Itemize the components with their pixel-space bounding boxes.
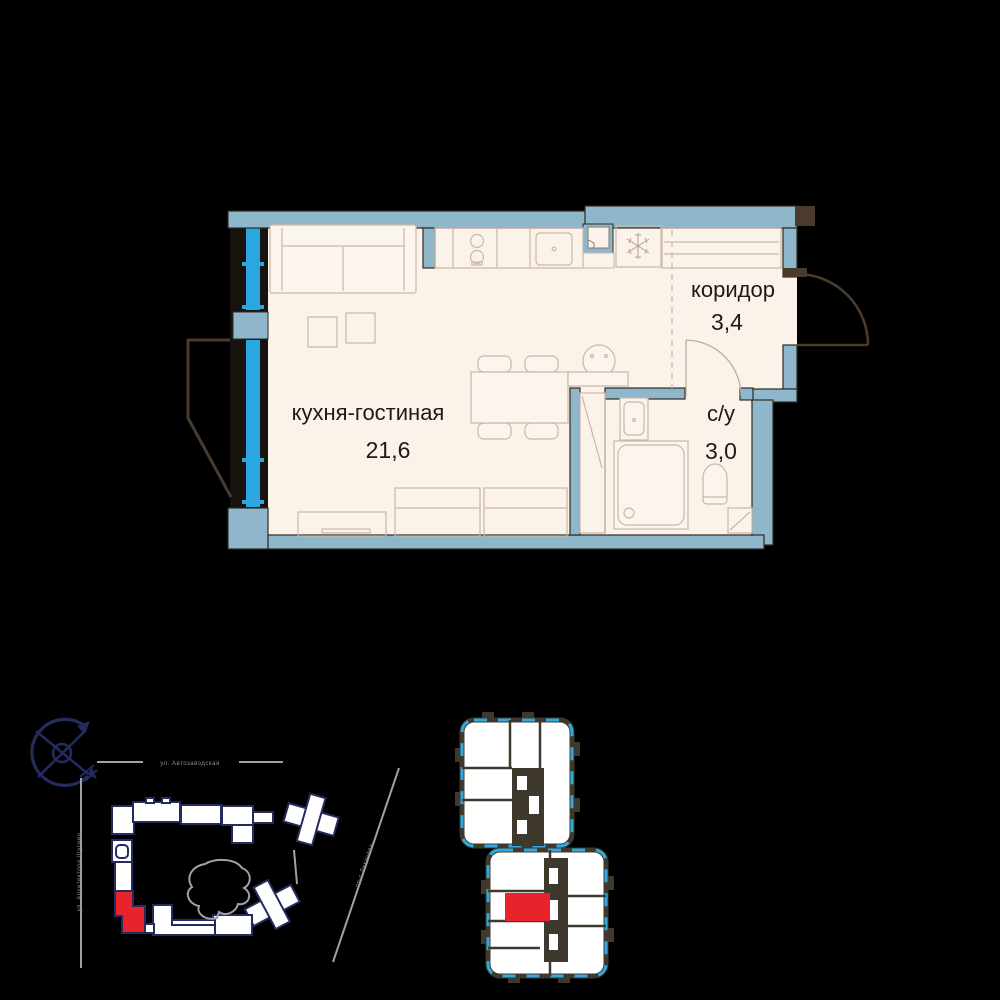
wall-pier bbox=[233, 312, 268, 339]
floorplan-page: кухня-гостиная 21,6 коридор 3,4 с/у 3,0 … bbox=[0, 0, 1000, 1000]
core bbox=[512, 768, 544, 846]
balcony-outline bbox=[188, 340, 231, 497]
tower-building bbox=[279, 789, 342, 850]
shower-icon bbox=[614, 441, 688, 529]
street-label-left: ул. Архитектора Щусева bbox=[77, 832, 83, 911]
room-area-kitchen: 21,6 bbox=[366, 437, 411, 463]
compass-icon bbox=[32, 719, 97, 785]
duct-shaft bbox=[583, 224, 614, 268]
room-area-bathroom: 3,0 bbox=[705, 438, 737, 464]
door-jamb bbox=[783, 268, 807, 277]
room-area-corridor: 3,4 bbox=[711, 309, 743, 335]
lower-tower bbox=[481, 850, 614, 983]
apartment-floor-plan: кухня-гостиная 21,6 коридор 3,4 с/у 3,0 bbox=[188, 206, 868, 549]
upper-tower bbox=[455, 712, 580, 859]
building-floor-layout bbox=[455, 712, 614, 983]
window-glazing bbox=[246, 228, 260, 310]
window-glazing bbox=[246, 340, 260, 507]
courtyard-pond bbox=[188, 860, 250, 919]
room-label-bathroom: с/у bbox=[707, 401, 735, 426]
room-label-kitchen: кухня-гостиная bbox=[292, 400, 445, 425]
entrance-door bbox=[797, 274, 868, 345]
washbasin-icon bbox=[620, 398, 648, 440]
toilet-icon bbox=[703, 464, 727, 504]
floor-highlight-unit[interactable] bbox=[505, 893, 550, 921]
street-label-top: ул. Автозаводская bbox=[160, 761, 219, 767]
wall-end-cap bbox=[795, 206, 815, 226]
site-plan: ул. Автозаводская ул. Архитектора Щусева… bbox=[32, 719, 399, 968]
plans-svg: кухня-гостиная 21,6 коридор 3,4 с/у 3,0 … bbox=[0, 0, 1000, 1000]
window-wall bbox=[230, 222, 268, 542]
sofa bbox=[270, 225, 416, 293]
entry-threshold bbox=[783, 277, 797, 345]
bath-duct bbox=[728, 508, 752, 533]
room-label-corridor: коридор bbox=[691, 277, 775, 302]
bar-counter bbox=[568, 372, 628, 386]
closet-niche bbox=[580, 393, 605, 533]
street-label-right: пр-т Лихачёва bbox=[355, 843, 376, 888]
site-buildings bbox=[112, 789, 343, 938]
site-highlight-unit[interactable] bbox=[115, 891, 145, 933]
